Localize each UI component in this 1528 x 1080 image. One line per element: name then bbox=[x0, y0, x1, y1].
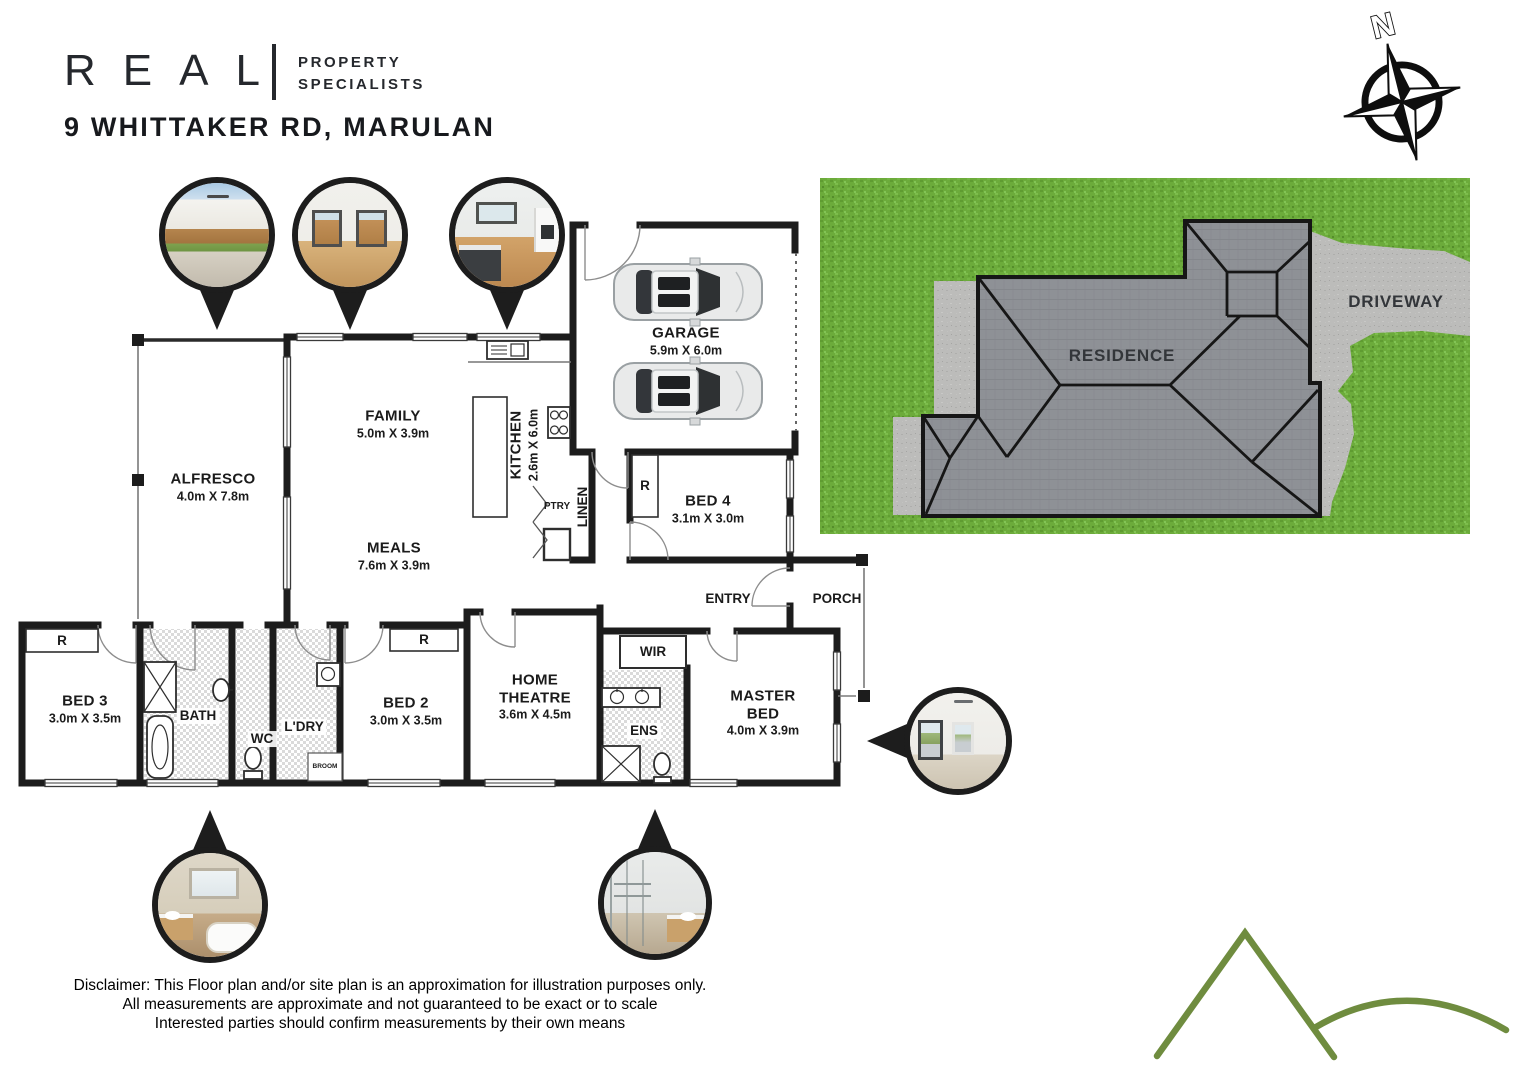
window bbox=[918, 720, 943, 761]
island-bench bbox=[459, 245, 501, 281]
label-robe-bed4: R bbox=[640, 478, 650, 494]
basin-icon bbox=[213, 679, 229, 701]
room-label-master-bed: MASTER BED 4.0m X 3.9m bbox=[723, 687, 803, 738]
toilet-icon bbox=[245, 747, 261, 769]
porch bbox=[838, 554, 870, 702]
fridge-box bbox=[544, 529, 570, 560]
disclaimer-text: Disclaimer: This Floor plan and/or site … bbox=[60, 976, 720, 1033]
label-wc: WC bbox=[248, 731, 277, 747]
car-icon bbox=[614, 258, 762, 326]
label-robe-bed3: R bbox=[57, 633, 67, 649]
mountain-logo-icon bbox=[1157, 933, 1506, 1057]
car-icon bbox=[614, 357, 762, 425]
room-label-alfresco: ALFRESCO 4.0m X 7.8m bbox=[171, 470, 256, 503]
photo-pin-ensuite bbox=[598, 846, 712, 960]
room-label-family: FAMILY 5.0m X 3.9m bbox=[357, 407, 429, 440]
ensuite-photo bbox=[598, 846, 712, 960]
window bbox=[189, 868, 239, 899]
room-label-bed3: BED 3 3.0m X 3.5m bbox=[49, 692, 121, 725]
room-label-meals: MEALS 7.6m X 3.9m bbox=[358, 539, 430, 572]
photo-pin-master-bed bbox=[904, 687, 1012, 795]
family-room-photo bbox=[292, 177, 408, 293]
window bbox=[952, 722, 973, 755]
kitchen-island bbox=[473, 397, 507, 517]
photo-pin-kitchen bbox=[449, 177, 565, 293]
label-ensuite: ENS bbox=[627, 723, 661, 739]
room-label-home-theatre: HOME THEATRE 3.6m X 4.5m bbox=[487, 671, 583, 722]
compass-north-label: N bbox=[1367, 5, 1398, 46]
disclaimer-line1: Disclaimer: This Floor plan and/or site … bbox=[60, 976, 720, 995]
towel-rail bbox=[614, 883, 651, 885]
shower-glass bbox=[610, 860, 657, 946]
bathtub bbox=[206, 922, 258, 953]
room-label-bed4: BED 4 3.1m X 3.0m bbox=[672, 492, 744, 525]
room-label-bed2: BED 2 3.0m X 3.5m bbox=[370, 694, 442, 727]
photo-pin-alfresco bbox=[159, 177, 275, 293]
window bbox=[476, 202, 517, 225]
label-driveway: DRIVEWAY bbox=[1348, 292, 1444, 312]
photo-pin-family bbox=[292, 177, 408, 293]
window bbox=[312, 210, 343, 247]
room-label-kitchen: KITCHEN 2.6m X 6.0m bbox=[507, 409, 540, 481]
oven bbox=[541, 225, 553, 240]
kitchen-photo bbox=[449, 177, 565, 293]
photo-pin-bathroom bbox=[152, 847, 268, 963]
basin bbox=[165, 911, 180, 919]
label-linen: LINEN bbox=[575, 487, 591, 528]
disclaimer-line3: Interested parties should confirm measur… bbox=[60, 1014, 720, 1033]
ensuite-toilet-icon bbox=[654, 753, 670, 775]
towel-rail bbox=[614, 895, 651, 897]
alfresco-photo bbox=[159, 177, 275, 293]
cooktop-icon bbox=[548, 407, 570, 438]
label-broom: BROOM bbox=[310, 763, 341, 771]
ceiling-fan-icon bbox=[954, 700, 973, 703]
label-wir: WIR bbox=[640, 644, 666, 660]
master-bed-photo bbox=[904, 687, 1012, 795]
disclaimer-line2: All measurements are approximate and not… bbox=[60, 995, 720, 1014]
bathroom-photo bbox=[152, 847, 268, 963]
label-entry: ENTRY bbox=[705, 591, 750, 607]
label-residence: RESIDENCE bbox=[1069, 346, 1175, 366]
floorplan-page: REAL PROPERTY SPECIALISTS 9 WHITTAKER RD… bbox=[0, 0, 1528, 1080]
label-laundry: L'DRY bbox=[281, 719, 326, 735]
label-porch: PORCH bbox=[813, 591, 862, 607]
label-bath: BATH bbox=[177, 708, 220, 724]
label-pantry: PTRY bbox=[544, 501, 570, 513]
room-label-garage: GARAGE 5.9m X 6.0m bbox=[650, 324, 722, 357]
compass-icon: N bbox=[1320, 0, 1474, 175]
label-robe-bed2: R bbox=[419, 632, 429, 648]
window bbox=[356, 210, 387, 247]
